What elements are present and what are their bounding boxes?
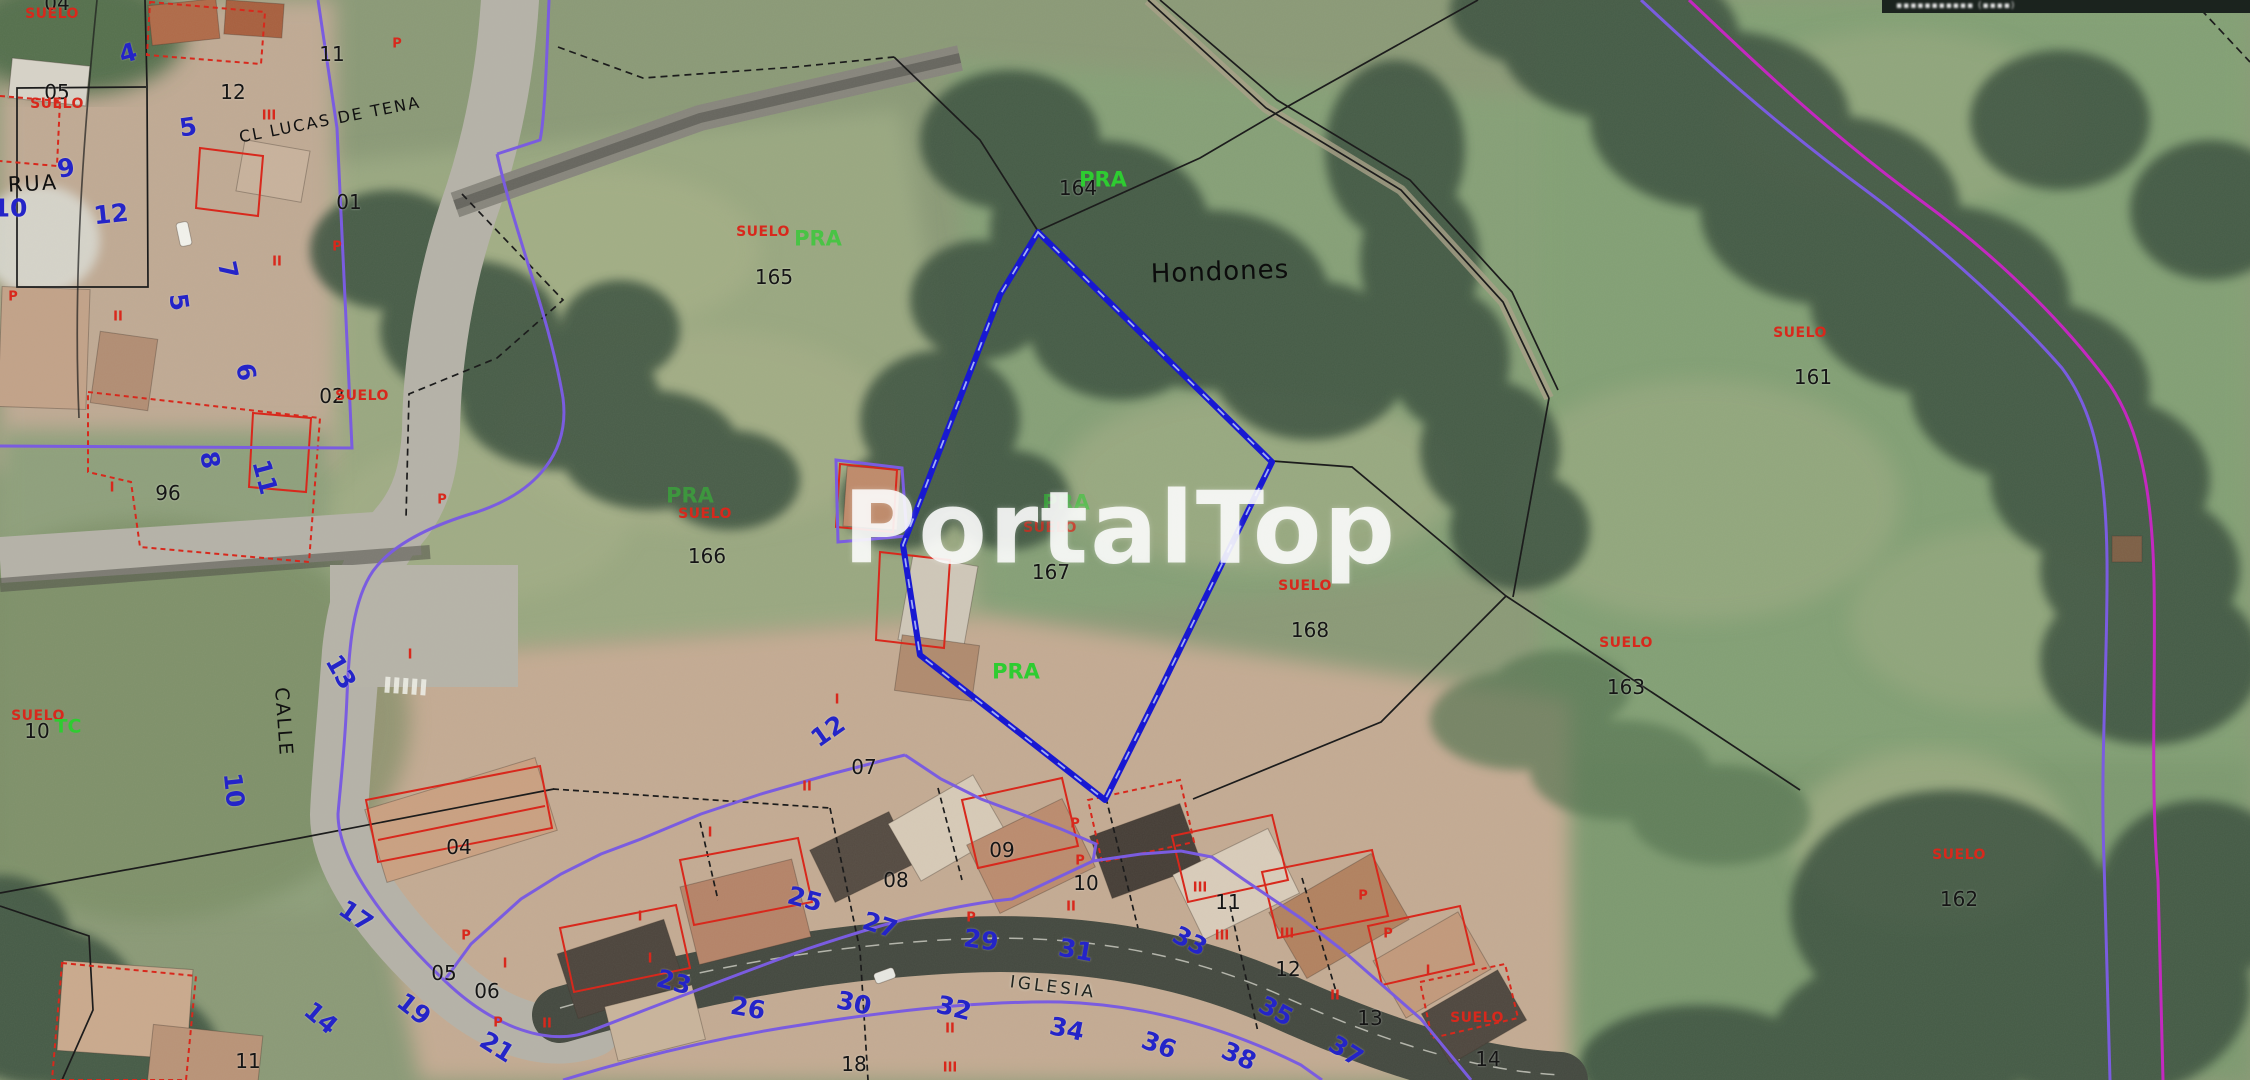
map-canvas[interactable]: RUACL LUCAS DE TENACALLEIGLESIAHondones0… (0, 0, 2250, 1080)
map-attribution-bar: ▪▪▪▪▪▪▪▪▪▪▪ (▪▪▪▪) (1882, 0, 2250, 13)
aerial-map-svg (0, 0, 2250, 1080)
map-attribution-text: ▪▪▪▪▪▪▪▪▪▪▪ (▪▪▪▪) (1896, 2, 2015, 11)
